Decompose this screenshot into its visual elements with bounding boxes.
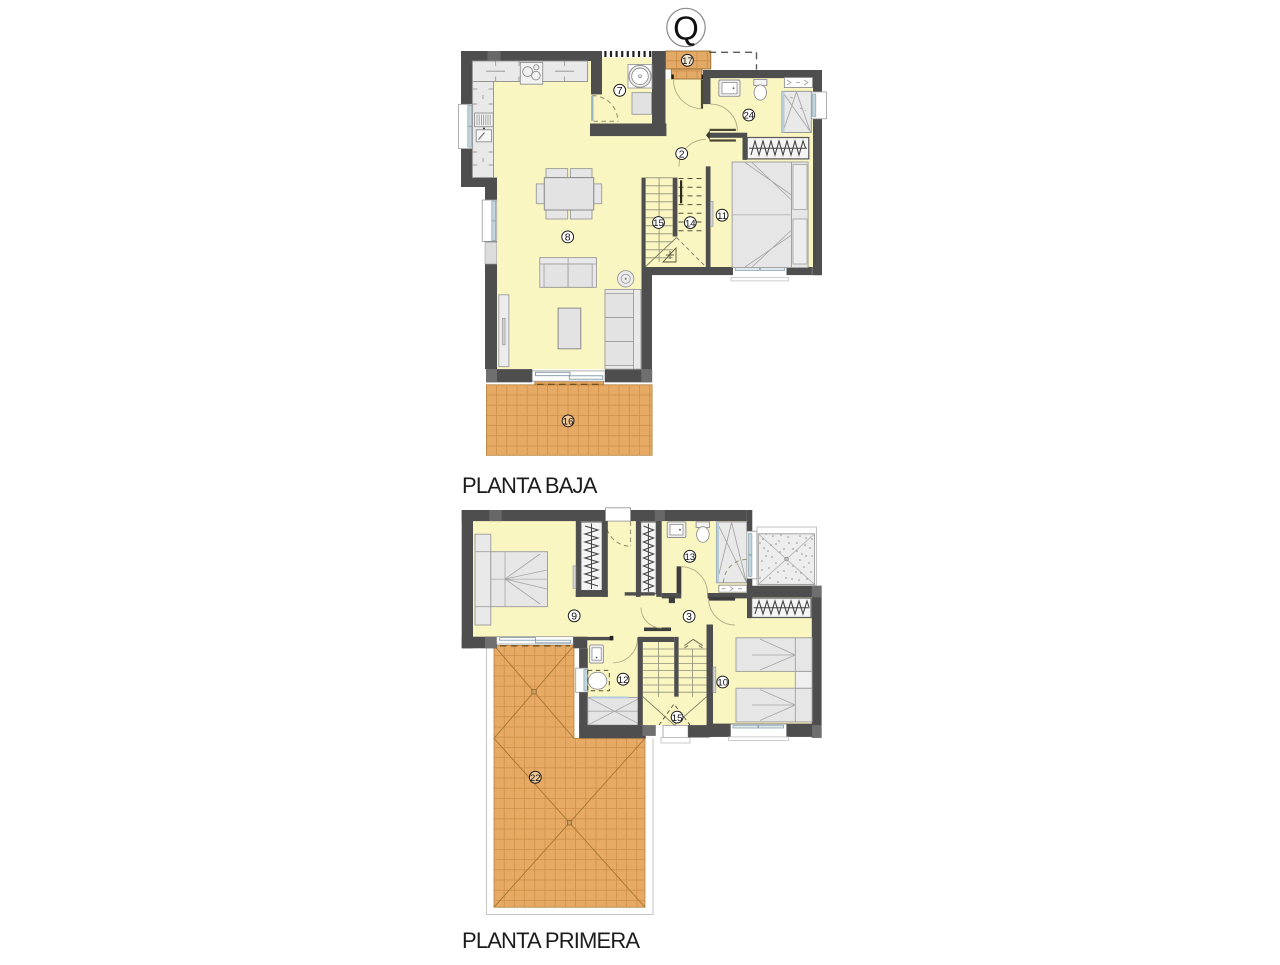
svg-text:PLANTA PRIMERA: PLANTA PRIMERA [462,928,640,953]
svg-text:16: 16 [563,417,574,428]
svg-text:15: 15 [653,218,664,229]
svg-text:2: 2 [679,148,685,160]
svg-text:11: 11 [717,211,727,222]
svg-text:22: 22 [530,773,541,784]
svg-text:13: 13 [684,552,695,563]
svg-text:9: 9 [571,611,577,623]
svg-text:Q: Q [673,10,699,47]
svg-text:15: 15 [672,713,683,724]
svg-text:8: 8 [565,232,571,244]
svg-text:14: 14 [685,218,696,229]
svg-text:10: 10 [717,678,728,689]
svg-text:17: 17 [682,56,693,67]
svg-text:24: 24 [743,111,754,122]
svg-text:PLANTA BAJA: PLANTA BAJA [462,473,598,498]
svg-text:7: 7 [617,85,623,97]
svg-text:3: 3 [686,611,692,623]
svg-text:12: 12 [618,675,629,686]
